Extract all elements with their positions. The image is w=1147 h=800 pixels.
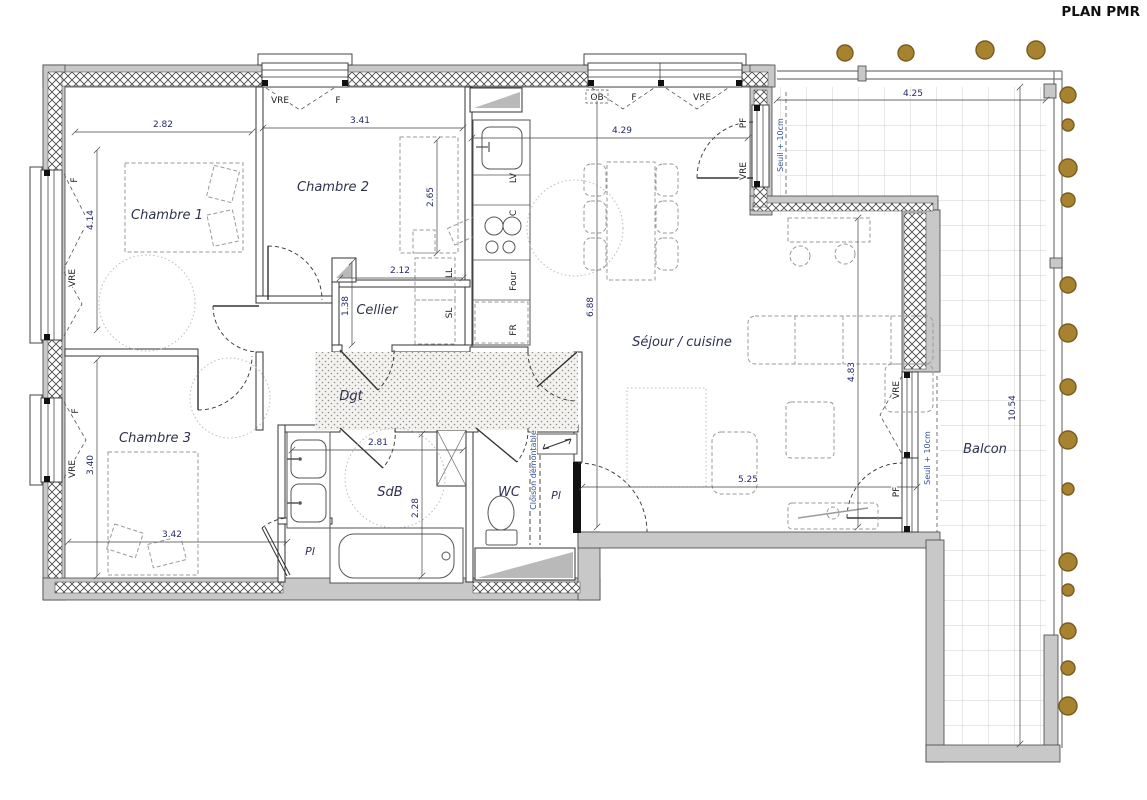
coffee-table: [786, 402, 834, 458]
plan-title: PLAN PMR: [1061, 4, 1140, 20]
nightstand: [413, 230, 435, 253]
wall-south-east: [578, 532, 940, 548]
dim-sdb-h: 2.28: [411, 498, 421, 518]
door-entrance-arc: [578, 463, 647, 532]
hatch-north-1: [55, 72, 262, 86]
basin-drain: [298, 457, 302, 461]
hatch-north-2: [348, 72, 588, 86]
hatch-east-up2: [754, 185, 767, 207]
label-pf-east: PF: [892, 487, 902, 498]
planter-dot-icon: [1059, 553, 1077, 571]
wall-balcony-south: [926, 745, 1060, 762]
window-pivot: [754, 181, 760, 187]
planter-dot-icon: [1060, 87, 1076, 103]
dim-ch2-w: 3.41: [350, 116, 370, 126]
planter-dot-icon: [898, 45, 914, 61]
dryer-sl: [415, 300, 455, 344]
balcony-low-wall-right: [1044, 635, 1058, 747]
label-placard-wc: Pl: [551, 489, 561, 502]
window-pivot: [904, 372, 910, 378]
floor-plan-page: 2.82 3.41 4.29 4.25 4.14 2.65 2.12 1.38 …: [0, 0, 1147, 800]
floor-plan-drawing: 2.82 3.41 4.29 4.25 4.14 2.65 2.12 1.38 …: [0, 0, 1147, 800]
label-sdb: SdB: [377, 485, 403, 500]
wall-dgt-ch3: [256, 352, 263, 430]
window-pivot: [44, 398, 50, 404]
note-cloison: Cloison démontable: [528, 430, 538, 510]
label-cellier: Cellier: [356, 303, 399, 318]
label-fr: FR: [509, 324, 519, 335]
label-lv: LV: [509, 172, 519, 183]
toilet-bowl: [488, 496, 514, 530]
dining-chair: [656, 238, 678, 270]
bed-chambre3: [108, 452, 198, 575]
dining-chair: [656, 164, 678, 196]
balcony-railing-top: [777, 71, 1062, 79]
wall-sdb-wc: [466, 425, 473, 582]
window-chambre2: [262, 63, 348, 87]
planter-dot-icon: [1060, 277, 1076, 293]
dim-sejour-e-h: 4.83: [847, 362, 857, 382]
dim-kitchen-w: 4.29: [612, 126, 632, 136]
window-pivot: [588, 80, 594, 86]
planter-dot-icon: [1059, 324, 1077, 342]
planter-dot-icon: [1059, 431, 1077, 449]
label-vre-ch3: VRE: [68, 460, 78, 478]
door-chambre2-arc: [268, 246, 322, 300]
label-vre-ch1: VRE: [68, 269, 78, 287]
hatch-east-up1: [754, 90, 767, 106]
hatch-west-1: [48, 72, 62, 170]
turning-circle-ch1: [99, 255, 195, 351]
window-pivot: [342, 80, 348, 86]
turning-circle-dining: [527, 180, 623, 276]
door-sdb-arc: [383, 428, 395, 468]
window-chambre1: [41, 170, 62, 340]
balcony-railing-post: [1050, 258, 1062, 268]
window-sejour-north: [588, 63, 742, 87]
hatch-north-3: [742, 72, 768, 86]
pillow: [207, 210, 239, 247]
door-placard-ch3-leaf: [262, 527, 290, 576]
window-sejour-east-upper: [752, 105, 769, 187]
dim-balcony-e-h: 10.54: [1008, 395, 1018, 421]
hatch-west-2: [48, 340, 62, 398]
hatch-south-1: [55, 582, 283, 593]
wall-cellier-south-2: [392, 345, 472, 352]
door-entrance-leaf: [573, 462, 581, 533]
wall-ch1-ch3: [65, 349, 198, 356]
dim-ch1-h: 4.14: [86, 210, 96, 230]
kitchen-sink: [482, 127, 522, 169]
label-wc: WC: [498, 485, 521, 500]
dim-cellier-h: 1.38: [341, 296, 351, 316]
planter-dot-icon: [1059, 697, 1077, 715]
planter-dot-icon: [837, 45, 853, 61]
label-placard-ch3: Pl: [305, 545, 315, 558]
label-chambre2: Chambre 2: [297, 180, 369, 195]
label-chambre3: Chambre 3: [119, 431, 191, 446]
planter-dot-icon: [1027, 41, 1045, 59]
dining-chair: [584, 201, 606, 233]
dim-cellier-w: 2.12: [390, 266, 410, 276]
door-sdb-leaf: [340, 428, 383, 468]
hatch-south-2: [473, 582, 580, 593]
dining-chair: [584, 164, 606, 196]
turning-circle-sdb: [345, 428, 445, 528]
dining-chair: [584, 238, 606, 270]
label-vre-east-upper: VRE: [739, 162, 749, 180]
balcony-railing-post: [1044, 84, 1056, 98]
window-sill: [30, 167, 42, 343]
label-sejour: Séjour / cuisine: [632, 335, 732, 350]
label-c: C: [509, 210, 519, 216]
planter-dot-icon: [1062, 483, 1074, 495]
hatch-west-3: [48, 482, 62, 578]
bathtub-inner: [339, 534, 454, 578]
label-ll: LL: [445, 268, 455, 278]
door-chambre1-arc: [213, 306, 259, 352]
hatch-east: [904, 213, 926, 369]
rug: [627, 388, 706, 487]
pillow: [207, 165, 240, 202]
dim-sdb-w: 2.81: [368, 438, 388, 448]
label-f-ch3: F: [71, 408, 81, 413]
window-pivot: [262, 80, 268, 86]
dining-table: [607, 162, 655, 280]
window-pivot: [658, 80, 664, 86]
label-pf-east-upper: PF: [739, 118, 749, 129]
window-pivot: [904, 452, 910, 458]
wall-ch1-ch2: [256, 87, 263, 300]
note-seuil-east: Seuil + 10cm: [923, 431, 932, 485]
balcony-railing-post: [858, 66, 866, 81]
door-wc-leaf: [476, 428, 517, 462]
window-pivot: [44, 476, 50, 482]
label-balcon: Balcon: [963, 442, 1007, 457]
tv-screen: [798, 508, 868, 518]
planter-dot-icon: [1062, 119, 1074, 131]
dim-sejour-h: 6.88: [586, 297, 596, 317]
planter-dot-icon: [1059, 159, 1077, 177]
planter-dot-icon: [1062, 584, 1074, 596]
dining-chair: [656, 201, 678, 233]
planter-dot-icon: [1060, 623, 1076, 639]
dim-ch3-w: 3.42: [162, 530, 182, 540]
planter-dot-icon: [1061, 661, 1075, 675]
pillow: [148, 536, 187, 568]
label-dgt: Dgt: [339, 389, 363, 404]
planter-dot-icon: [1061, 193, 1075, 207]
dim-ch1-w: 2.82: [153, 120, 173, 130]
pillow: [107, 524, 144, 558]
window-pivot: [44, 334, 50, 340]
label-vre-ch2: VRE: [271, 96, 289, 106]
dim-ch2-bed: 2.65: [426, 187, 436, 207]
window-pivot: [44, 170, 50, 176]
label-f-ch2: F: [335, 96, 340, 106]
wall-ch2-kitchen: [465, 87, 472, 347]
dim-balcony-n-w: 4.25: [903, 89, 923, 99]
window-sejour-east-vre: [902, 372, 918, 458]
label-four: Four: [509, 271, 519, 291]
label-sl: SL: [445, 308, 455, 319]
door-chambre3-arc: [198, 356, 252, 410]
window-chambre3: [41, 398, 62, 482]
window-pivot: [904, 526, 910, 532]
hatch-divider: [753, 203, 933, 211]
label-vre-sejour: VRE: [693, 93, 711, 103]
planter-dot-icon: [976, 41, 994, 59]
door-wc-arc: [517, 428, 528, 462]
sofa-cushions: [795, 316, 891, 364]
label-f-sejour: F: [631, 93, 636, 103]
label-ob-sejour: OB: [590, 93, 603, 103]
window-sill: [30, 395, 42, 485]
note-seuil-north: Seuil + 10cm: [776, 118, 785, 172]
label-f-ch1: F: [70, 177, 80, 182]
label-vre-east: VRE: [892, 381, 902, 399]
window-swing: [64, 174, 88, 336]
dim-ch3-h: 3.40: [86, 455, 96, 475]
dim-sejour-s-w: 5.25: [738, 475, 758, 485]
toilet-tank: [486, 530, 517, 545]
desk-chair: [835, 244, 855, 264]
window-sejour-east-pf: [902, 458, 918, 532]
wall-balcony-west-low: [926, 540, 944, 762]
planter-dot-icon: [1060, 379, 1076, 395]
window-pivot: [736, 80, 742, 86]
desk-chair: [790, 246, 810, 266]
label-chambre1: Chambre 1: [131, 208, 203, 223]
basin-drain: [298, 501, 302, 505]
wall-cellier-west: [332, 280, 339, 352]
window-pivot: [754, 105, 760, 111]
